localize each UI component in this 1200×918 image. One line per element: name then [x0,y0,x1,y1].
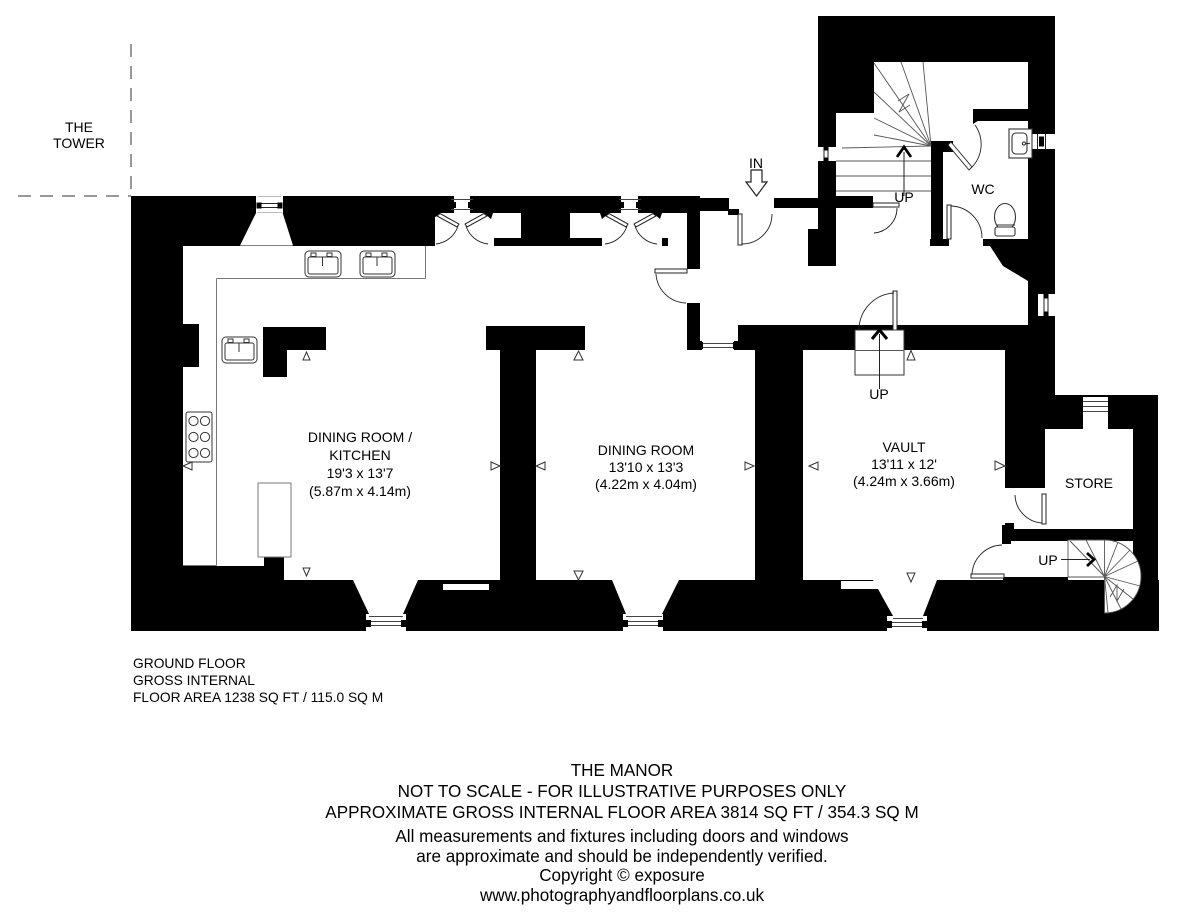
svg-text:13'10 x 13'3: 13'10 x 13'3 [609,459,684,475]
svg-text:STORE: STORE [1065,475,1113,491]
svg-text:DINING ROOM: DINING ROOM [598,442,694,458]
svg-text:VAULT: VAULT [882,439,925,455]
svg-text:GROSS INTERNAL: GROSS INTERNAL [133,673,255,688]
svg-text:IN: IN [749,155,763,171]
svg-text:WC: WC [971,181,994,197]
svg-text:(4.24m x 3.66m): (4.24m x 3.66m) [853,473,955,489]
svg-text:All measurements and fixtures: All measurements and fixtures including … [395,827,848,846]
svg-text:UP: UP [869,386,888,402]
svg-text:NOT TO SCALE - FOR ILLUSTRATIV: NOT TO SCALE - FOR ILLUSTRATIVE PURPOSES… [398,782,847,801]
svg-text:UP: UP [1038,552,1057,568]
svg-text:FLOOR AREA 1238 SQ FT / 115.0: FLOOR AREA 1238 SQ FT / 115.0 SQ M [133,690,383,705]
svg-text:GROUND FLOOR: GROUND FLOOR [133,656,246,671]
svg-text:KITCHEN: KITCHEN [329,447,390,463]
svg-text:DINING ROOM /: DINING ROOM / [308,429,412,445]
svg-text:(4.22m x 4.04m): (4.22m x 4.04m) [595,476,697,492]
svg-text:APPROXIMATE GROSS INTERNAL FLO: APPROXIMATE GROSS INTERNAL FLOOR AREA 38… [325,803,918,822]
svg-text:UP: UP [894,189,913,205]
svg-text:13'11 x 12': 13'11 x 12' [871,456,937,472]
svg-text:(5.87m x 4.14m): (5.87m x 4.14m) [309,483,411,499]
svg-text:are approximate and should be: are approximate and should be independen… [416,847,827,866]
svg-text:THE MANOR: THE MANOR [571,761,674,780]
svg-text:19'3 x 13'7: 19'3 x 13'7 [327,465,394,481]
svg-text:www.photographyandfloorplans.c: www.photographyandfloorplans.co.uk [479,886,765,905]
svg-text:THE: THE [65,119,93,135]
svg-text:Copyright © exposure: Copyright © exposure [539,866,705,885]
svg-text:TOWER: TOWER [53,135,105,151]
